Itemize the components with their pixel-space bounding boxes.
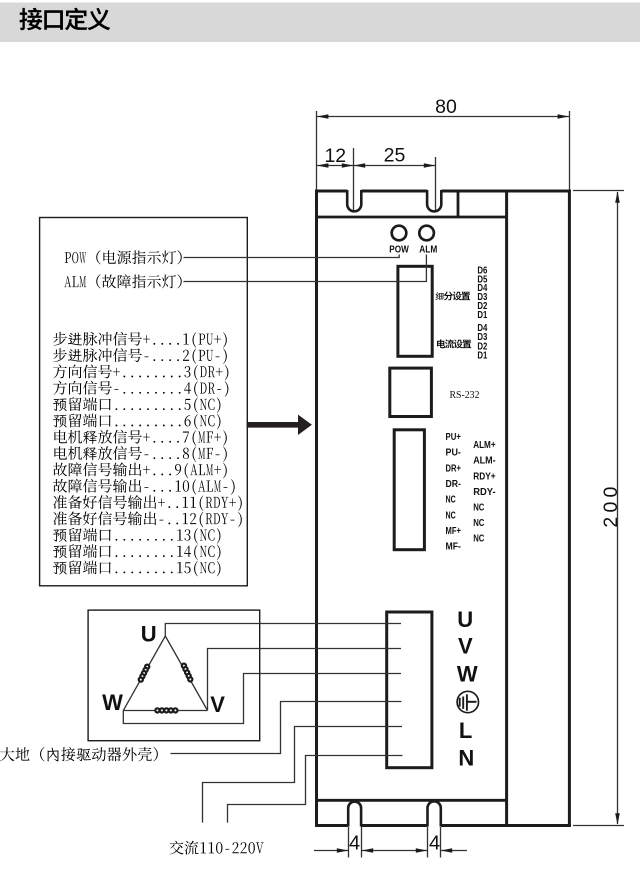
svg-text:PU-: PU- bbox=[446, 448, 462, 459]
svg-text:RS-232: RS-232 bbox=[450, 390, 480, 401]
svg-text:N: N bbox=[458, 746, 474, 771]
svg-text:12: 12 bbox=[324, 145, 346, 167]
svg-text:V: V bbox=[458, 634, 473, 659]
svg-text:L: L bbox=[459, 718, 472, 743]
svg-text:DR+: DR+ bbox=[446, 463, 461, 474]
svg-text:4: 4 bbox=[429, 833, 440, 855]
svg-text:MF-: MF- bbox=[446, 542, 462, 553]
svg-text:NC: NC bbox=[473, 502, 485, 513]
svg-text:PU+: PU+ bbox=[446, 432, 461, 443]
svg-text:D1: D1 bbox=[477, 310, 487, 321]
svg-text:NC: NC bbox=[446, 510, 457, 521]
svg-text:V: V bbox=[210, 692, 225, 717]
svg-text:W: W bbox=[457, 662, 478, 687]
svg-text:W: W bbox=[102, 690, 123, 715]
svg-text:200: 200 bbox=[600, 482, 622, 527]
svg-text:NC: NC bbox=[473, 518, 485, 529]
svg-text:DR-: DR- bbox=[446, 479, 462, 490]
svg-text:4: 4 bbox=[349, 833, 360, 855]
svg-text:RDY+: RDY+ bbox=[473, 471, 495, 482]
svg-text:POW: POW bbox=[389, 243, 409, 255]
svg-text:80: 80 bbox=[435, 96, 457, 118]
svg-text:ALM-: ALM- bbox=[473, 456, 496, 467]
svg-text:NC: NC bbox=[473, 533, 485, 544]
svg-text:RDY-: RDY- bbox=[473, 487, 496, 498]
svg-text:NC: NC bbox=[446, 495, 457, 506]
svg-text:U: U bbox=[141, 622, 157, 647]
svg-text:MF+: MF+ bbox=[446, 526, 461, 537]
svg-text:U: U bbox=[457, 607, 473, 632]
svg-text:ALM: ALM bbox=[419, 243, 437, 255]
svg-text:D1: D1 bbox=[477, 350, 487, 361]
svg-text:ALM+: ALM+ bbox=[473, 440, 495, 451]
svg-text:25: 25 bbox=[384, 145, 406, 167]
